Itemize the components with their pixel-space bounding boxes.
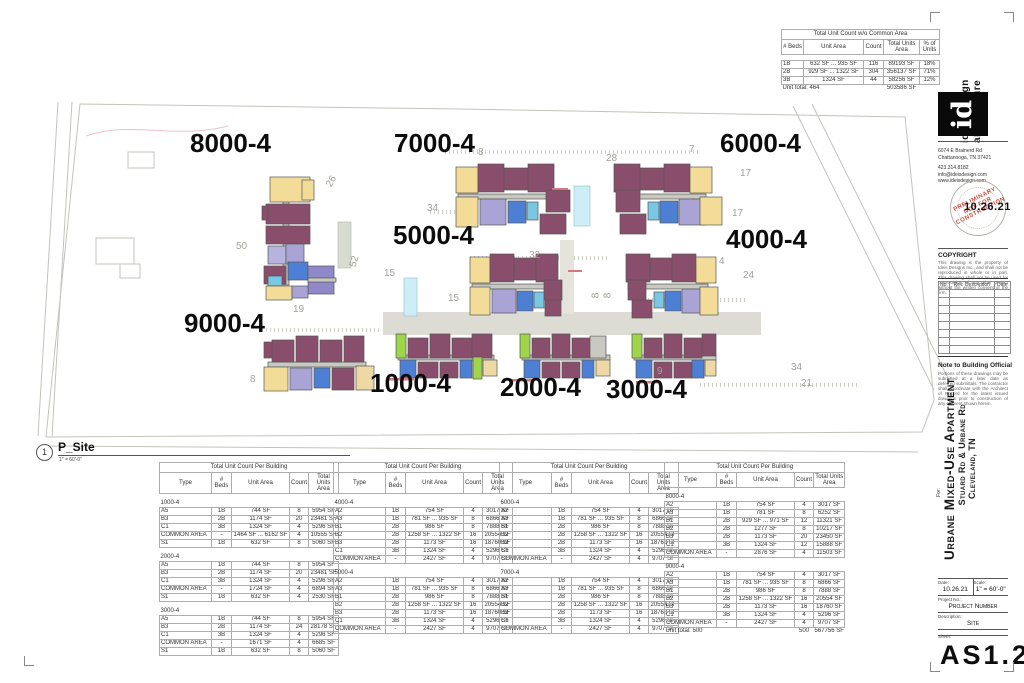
group-name-row: 6000-4 xyxy=(500,499,679,508)
rev-empty-row xyxy=(939,346,1011,354)
building-label-9000-4: 9000-4 xyxy=(184,308,265,339)
building-label-2000-4: 2000-4 xyxy=(500,372,581,403)
cell: 116 xyxy=(864,61,884,69)
table-row: B22B1258 SF ... 1322 SF1620554 SF xyxy=(334,532,513,540)
table-title-row: Total Unit Count Per Building xyxy=(500,463,679,473)
cell: C1 xyxy=(665,612,717,620)
crop-mark xyxy=(930,662,940,672)
cell: 1B xyxy=(212,562,232,570)
unit-table-2: Total Unit Count Per BuildingType# BedsU… xyxy=(333,462,513,634)
parking-count: 8 xyxy=(602,293,613,299)
cell: 16 xyxy=(464,610,483,618)
header-cell: Type xyxy=(160,473,212,494)
cell: - xyxy=(717,620,737,628)
parking-count: 34 xyxy=(791,362,802,373)
cell: 12% xyxy=(920,77,940,85)
rev-empty-row xyxy=(939,322,1011,330)
cell: 89193 SF xyxy=(884,61,920,69)
cell: 8 xyxy=(464,594,483,602)
group-name-row: 4000-4 xyxy=(334,499,513,508)
table-row: COMMON AREA-2427 SF49707 SF xyxy=(665,620,845,628)
cell: 3B xyxy=(212,524,232,532)
cell: 23450 SF xyxy=(814,534,845,542)
divider xyxy=(938,356,1008,357)
parking-count: 32 xyxy=(529,250,540,261)
header-cell: Type xyxy=(665,473,717,488)
cell: 11503 SF xyxy=(814,550,845,558)
cell: 929 SF ... 1322 SF xyxy=(804,69,864,77)
parking-count: 4 xyxy=(719,256,725,267)
cell: 24 xyxy=(290,624,309,632)
rev-empty-row xyxy=(939,314,1011,322)
table-header-row: Type# BedsUnit AreaCountTotal Units Area xyxy=(500,473,679,494)
group-name-row: 9000-4 xyxy=(665,563,845,572)
cell: A2 xyxy=(334,508,386,516)
table-row: B22B1258 SF ... 1322 SF1620554 SF xyxy=(665,596,845,604)
table-row: C13B1324 SF45296 SF xyxy=(160,578,339,586)
header-cell: Rev. Description xyxy=(949,282,994,290)
table-row: B32B1174 SF2428178 SF xyxy=(160,624,339,632)
cell: 4 xyxy=(290,594,309,602)
unit-count-table: Total Unit Count Per BuildingType# BedsU… xyxy=(664,462,845,635)
table-row: A21B754 SF43017 SF xyxy=(334,578,513,586)
address-line: Chattanooga, TN 37421 xyxy=(938,155,991,162)
cell: 58256 SF xyxy=(884,77,920,85)
cell: B2 xyxy=(334,602,386,610)
cell: B3 xyxy=(665,534,717,542)
table-row: B22B1258 SF ... 1322 SF1620554 SF xyxy=(500,532,679,540)
crop-mark xyxy=(1004,662,1014,672)
cell: 1173 SF xyxy=(737,534,795,542)
cell: 4 xyxy=(290,524,309,532)
cell: S1 xyxy=(160,540,212,548)
building-label-6000-4: 6000-4 xyxy=(720,128,801,159)
cell: 44 xyxy=(864,77,884,85)
cell: 8 xyxy=(795,510,814,518)
cell: B3 xyxy=(500,610,552,618)
cell: A5 xyxy=(160,508,212,516)
table-row: C13B1324 SF1215888 SF xyxy=(665,542,845,550)
parking-count: 7 xyxy=(689,144,695,155)
cell: 4 xyxy=(464,508,483,516)
cell: 3017 SF xyxy=(814,502,845,510)
cell: 1324 SF xyxy=(232,578,290,586)
table-row: C13B1324 SF45296 SF xyxy=(665,612,845,620)
cell: 9707 SF xyxy=(814,620,845,628)
header-cell: # Beds xyxy=(782,40,804,55)
cell: 8 xyxy=(630,594,649,602)
table-row: COMMON AREA-2876 SF411503 SF xyxy=(665,550,845,558)
titleblock-fields: Date: 10.26.21 Scale: 1" = 60'-0" Projec… xyxy=(938,578,1008,638)
summary-unit-table: Total Unit Count w/o Common Area# BedsUn… xyxy=(781,29,940,92)
cell: 1B xyxy=(212,594,232,602)
unit-table-3: Total Unit Count Per BuildingType# BedsU… xyxy=(499,462,679,634)
cell: 4 xyxy=(464,578,483,586)
cell: 2B xyxy=(212,570,232,578)
parking-count: 34 xyxy=(427,203,438,214)
cell: 754 SF xyxy=(737,572,795,580)
cell: - xyxy=(552,626,572,634)
table-row: 3B1324 SF4458256 SF12% xyxy=(782,77,940,85)
cell: 3B xyxy=(386,618,406,626)
cell: 8 xyxy=(290,562,309,570)
cell: 2427 SF xyxy=(737,620,795,628)
cell: 2B xyxy=(552,524,572,532)
cell: C1 xyxy=(160,578,212,586)
cell: B2 xyxy=(500,602,552,610)
table-row: 2B929 SF ... 1322 SF304356137 SF71% xyxy=(782,69,940,77)
viewport-number: 1 xyxy=(36,444,53,461)
parking-count: 17 xyxy=(740,168,751,179)
parking-count: 17 xyxy=(732,208,743,219)
cell: COMMON AREA xyxy=(665,550,717,558)
cell: 1B xyxy=(386,578,406,586)
table-row: B12B986 SF87888 SF xyxy=(500,594,679,602)
table-footer-row: Unit total: 500500567756 SF xyxy=(665,628,845,636)
cell: - xyxy=(717,550,737,558)
table-row: B22B1258 SF ... 1322 SF1620554 SF xyxy=(500,602,679,610)
scale-value: 1" = 60'-0" xyxy=(974,585,1009,595)
cell: 2B xyxy=(782,69,804,77)
cell: 18% xyxy=(920,61,940,69)
cell: 16 xyxy=(630,532,649,540)
cell: A5 xyxy=(160,616,212,624)
cell: 4 xyxy=(464,626,483,634)
table-row: COMMON AREA-1464 SF ... 6162 SF410555 SF xyxy=(160,532,339,540)
header-cell: Count xyxy=(464,473,483,494)
cell: 1173 SF xyxy=(737,604,795,612)
cell: 3B xyxy=(552,548,572,556)
cell: 11321 SF xyxy=(814,518,845,526)
cell: 781 SF ... 935 SF xyxy=(737,580,795,588)
cell: 8 xyxy=(290,540,309,548)
cell: 8 xyxy=(464,586,483,594)
cell: 4 xyxy=(795,572,814,580)
table-row: A31B781 SF ... 935 SF86866 SF xyxy=(334,516,513,524)
cell: 754 SF xyxy=(572,508,630,516)
cell: 781 SF ... 935 SF xyxy=(406,586,464,594)
table-row: C13B1324 SF45296 SF xyxy=(500,548,679,556)
cell: B2 xyxy=(500,532,552,540)
header-cell: # Beds xyxy=(212,473,232,494)
cell: 1671 SF xyxy=(232,640,290,648)
cell: 16 xyxy=(630,602,649,610)
cell: A2 xyxy=(665,502,717,510)
cell: A2 xyxy=(500,578,552,586)
header-cell: Count xyxy=(630,473,649,494)
date-scale-row: Date: 10.26.21 Scale: 1" = 60'-0" xyxy=(938,578,1008,595)
cell: 632 SF ... 935 SF xyxy=(804,61,864,69)
header-cell: % of Units xyxy=(920,40,940,55)
cell: - xyxy=(212,586,232,594)
cell: C1 xyxy=(665,542,717,550)
table-row: B32B1173 SF2023450 SF xyxy=(665,534,845,542)
divider xyxy=(938,278,1008,279)
cell: 4 xyxy=(630,626,649,634)
cell: 781 SF ... 935 SF xyxy=(572,516,630,524)
cell: 2B xyxy=(386,610,406,618)
table-row: A21B754 SF43017 SF xyxy=(665,502,845,510)
cell: 1174 SF xyxy=(232,624,290,632)
table-row: A21B754 SF43017 SF xyxy=(334,508,513,516)
cell: 2B xyxy=(717,596,737,604)
header-cell: Unit Area xyxy=(406,473,464,494)
cell: 1B xyxy=(386,508,406,516)
building-label-1000-4: 1000-4 xyxy=(370,368,451,399)
cell: 4 xyxy=(464,548,483,556)
table-row: B22B1258 SF ... 1322 SF1620554 SF xyxy=(334,602,513,610)
rev-empty-row xyxy=(939,330,1011,338)
cell: 4 xyxy=(795,612,814,620)
cell: 2B xyxy=(386,524,406,532)
cell: 3B xyxy=(386,548,406,556)
header-cell: Total Units Area xyxy=(814,473,845,488)
building-label-5000-4: 5000-4 xyxy=(393,220,474,251)
divider xyxy=(938,141,1008,142)
firm-address: 6074 E Brainerd RdChattanooga, TN 374214… xyxy=(938,148,991,185)
building-label-7000-4: 7000-4 xyxy=(394,128,475,159)
cell: 1258 SF ... 1322 SF xyxy=(406,532,464,540)
description-row: Description: Site xyxy=(938,612,1008,629)
cell: 2427 SF xyxy=(406,626,464,634)
cell: - xyxy=(552,556,572,564)
rev-empty-row xyxy=(939,298,1011,306)
parking-count: 8 xyxy=(250,374,256,385)
cell: A3 xyxy=(665,580,717,588)
header-cell: # Beds xyxy=(386,473,406,494)
rev-empty-row xyxy=(939,338,1011,346)
header-cell: Count xyxy=(864,40,884,55)
cell: 929 SF ... 971 SF xyxy=(737,518,795,526)
building-5000-4 xyxy=(470,254,562,316)
cell: 1173 SF xyxy=(406,540,464,548)
cell: 1174 SF xyxy=(232,570,290,578)
divider xyxy=(938,248,1008,249)
parking-count: 8 xyxy=(478,147,484,158)
header-cell: Unit Area xyxy=(737,473,795,488)
cell: 2B xyxy=(386,532,406,540)
cell: A3 xyxy=(500,516,552,524)
viewport-underline xyxy=(58,455,350,456)
cell: 986 SF xyxy=(737,588,795,596)
cell: 8 xyxy=(795,526,814,534)
cell: 16 xyxy=(464,540,483,548)
cell: 2B xyxy=(717,518,737,526)
cell: A5 xyxy=(160,562,212,570)
group-name-row: 8000-4 xyxy=(665,493,845,502)
header-cell: No. xyxy=(939,282,950,290)
building-label-3000-4: 3000-4 xyxy=(606,374,687,405)
cell: 2427 SF xyxy=(572,556,630,564)
parking-count: 9 xyxy=(657,366,663,377)
cell: 8 xyxy=(290,508,309,516)
table-row: S11B632 SF85060 SF xyxy=(160,540,339,548)
cell: 1324 SF xyxy=(737,542,795,550)
cell: 1173 SF xyxy=(572,610,630,618)
cell: 1B xyxy=(717,502,737,510)
cell: 4 xyxy=(290,532,309,540)
table-title-row: Total Unit Count Per Building xyxy=(665,463,845,473)
cell: COMMON AREA xyxy=(500,626,552,634)
cell: COMMON AREA xyxy=(334,556,386,564)
cell: 1B xyxy=(717,510,737,518)
header-cell: Type xyxy=(334,473,386,494)
table-row: B32B1173 SF1618760 SF xyxy=(500,540,679,548)
cell: 2B xyxy=(552,594,572,602)
cell: 3B xyxy=(782,77,804,85)
group-name-row: 5000-4 xyxy=(334,569,513,578)
viewport-name: P_Site xyxy=(58,440,95,454)
table-title-row: Total Unit Count Per Building xyxy=(160,463,339,473)
parking-count: 28 xyxy=(606,153,617,164)
table-row: COMMON AREA-2427 SF49707 SF xyxy=(334,626,513,634)
cell: B3 xyxy=(160,516,212,524)
group-name-row: 7000-4 xyxy=(500,569,679,578)
header-cell: Count xyxy=(290,473,309,494)
project-no-row: Project No.: Project Number xyxy=(938,595,1008,612)
firm-logo-text: id xyxy=(938,92,988,136)
cell: 1324 SF xyxy=(804,77,864,85)
cell: 71% xyxy=(920,69,940,77)
table-row: A31B781 SF ... 935 SF86866 SF xyxy=(500,586,679,594)
cell: 1B xyxy=(717,580,737,588)
building-official-note-heading: Note to Building Official xyxy=(938,362,1012,369)
cell: 2427 SF xyxy=(572,626,630,634)
cell: 1464 SF ... 6162 SF xyxy=(232,532,290,540)
cell: 1258 SF ... 1322 SF xyxy=(572,602,630,610)
cell: 1B xyxy=(552,578,572,586)
cell: COMMON AREA xyxy=(334,626,386,634)
firm-logo: id xyxy=(938,92,988,136)
header-cell: # Beds xyxy=(717,473,737,488)
cell: B2 xyxy=(665,526,717,534)
cell: 4 xyxy=(464,556,483,564)
table-row: B32B1173 SF1618760 SF xyxy=(334,610,513,618)
cell: 1B xyxy=(212,648,232,656)
parking-count: 15 xyxy=(384,268,395,279)
cell: 16 xyxy=(795,596,814,604)
cell: 2B xyxy=(717,534,737,542)
cell: 16 xyxy=(630,540,649,548)
cell: 754 SF xyxy=(572,578,630,586)
stamp-date: 10.26.21 xyxy=(964,201,1011,213)
table-row: C13B1324 SF45296 SF xyxy=(334,618,513,626)
cell: 1324 SF xyxy=(572,618,630,626)
cell: 986 SF xyxy=(572,524,630,532)
header-cell: Unit Area xyxy=(572,473,630,494)
cell: 1324 SF xyxy=(232,632,290,640)
cell: 8 xyxy=(630,516,649,524)
cell: 2B xyxy=(717,526,737,534)
cell: 16 xyxy=(464,532,483,540)
cell: B3 xyxy=(500,540,552,548)
cell: 20554 SF xyxy=(814,596,845,604)
cell: COMMON AREA xyxy=(500,556,552,564)
table-header-row: Type# BedsUnit AreaCountTotal Units Area xyxy=(160,473,339,494)
cell: A2 xyxy=(665,572,717,580)
cell: 3B xyxy=(717,612,737,620)
cell: A2 xyxy=(500,508,552,516)
cell: 744 SF xyxy=(232,508,290,516)
table-row: C13B1324 SF45296 SF xyxy=(334,548,513,556)
group-name-row: 1000-4 xyxy=(160,499,339,508)
cell: C1 xyxy=(160,524,212,532)
cell: C1 xyxy=(160,632,212,640)
project-address: Stuard Rd & Urbane Rd xyxy=(957,404,967,505)
description-value: Site xyxy=(938,619,1008,629)
cell: 3B xyxy=(212,632,232,640)
cell: 4 xyxy=(630,618,649,626)
cell: 1258 SF ... 1322 SF xyxy=(737,596,795,604)
table-row: A21B754 SF43017 SF xyxy=(665,572,845,580)
cell: 986 SF xyxy=(406,594,464,602)
cell: B1 xyxy=(500,594,552,602)
cell: 6866 SF xyxy=(814,580,845,588)
cell: B3 xyxy=(665,604,717,612)
drawing-sheet: { "viewport": { "number": "1", "name": "… xyxy=(0,0,1024,683)
cell: 4 xyxy=(290,632,309,640)
cell: 1277 SF xyxy=(737,526,795,534)
cell: 7888 SF xyxy=(814,588,845,596)
cell: 6252 SF xyxy=(814,510,845,518)
date-value: 10.26.21 xyxy=(938,585,973,595)
parking-count: 21 xyxy=(801,378,812,389)
cell: 8 xyxy=(464,516,483,524)
building-3000-4 xyxy=(632,334,716,378)
table-row: COMMON AREA-2427 SF49707 SF xyxy=(500,556,679,564)
cell: B2 xyxy=(334,532,386,540)
header-cell: Type xyxy=(500,473,552,494)
table-row: A51B744 SF85954 SF xyxy=(160,562,339,570)
parking-count: 19 xyxy=(293,304,304,315)
cell: 4 xyxy=(795,620,814,628)
cell: 2876 SF xyxy=(737,550,795,558)
table-row: B12B986 SF87888 SF xyxy=(500,524,679,532)
table-header-row: Type# BedsUnit AreaCountTotal Units Area xyxy=(334,473,513,494)
building-9000-4 xyxy=(264,336,374,391)
project-no-value: Project Number xyxy=(938,602,1008,612)
table-row: B12B986 SF87888 SF xyxy=(665,588,845,596)
cell: 356137 SF xyxy=(884,69,920,77)
table-row: B22B1277 SF810217 SF xyxy=(665,526,845,534)
table-row: A51B744 SF85954 SF xyxy=(160,616,339,624)
parking-count: 15 xyxy=(448,293,459,304)
cell: 16 xyxy=(630,610,649,618)
cell: 20 xyxy=(290,570,309,578)
cell: 744 SF xyxy=(232,562,290,570)
cell: 1173 SF xyxy=(572,540,630,548)
cell: 2B xyxy=(552,532,572,540)
cell: 1324 SF xyxy=(232,524,290,532)
cell: 1B xyxy=(782,61,804,69)
project-title: Urbane Mixed-Use Apartment xyxy=(942,378,957,560)
cell: 12 xyxy=(795,518,814,526)
table-row: A51B744 SF85954 SF xyxy=(160,508,339,516)
cell: 1B xyxy=(212,508,232,516)
revision-table: No.Rev. DescriptionDate xyxy=(938,281,1011,354)
cell: B3 xyxy=(334,540,386,548)
project-city: Cleveland, TN xyxy=(967,438,977,499)
cell: 5296 SF xyxy=(814,612,845,620)
table-row: S11B632 SF42530 SF xyxy=(160,594,339,602)
cell: 2B xyxy=(386,602,406,610)
crop-mark xyxy=(1004,12,1014,22)
cell: - xyxy=(386,556,406,564)
cell: B3 xyxy=(160,570,212,578)
parking-count: 8 xyxy=(590,293,601,299)
table-row: C13B1324 SF45296 SF xyxy=(160,524,339,532)
cell: 4 xyxy=(630,548,649,556)
